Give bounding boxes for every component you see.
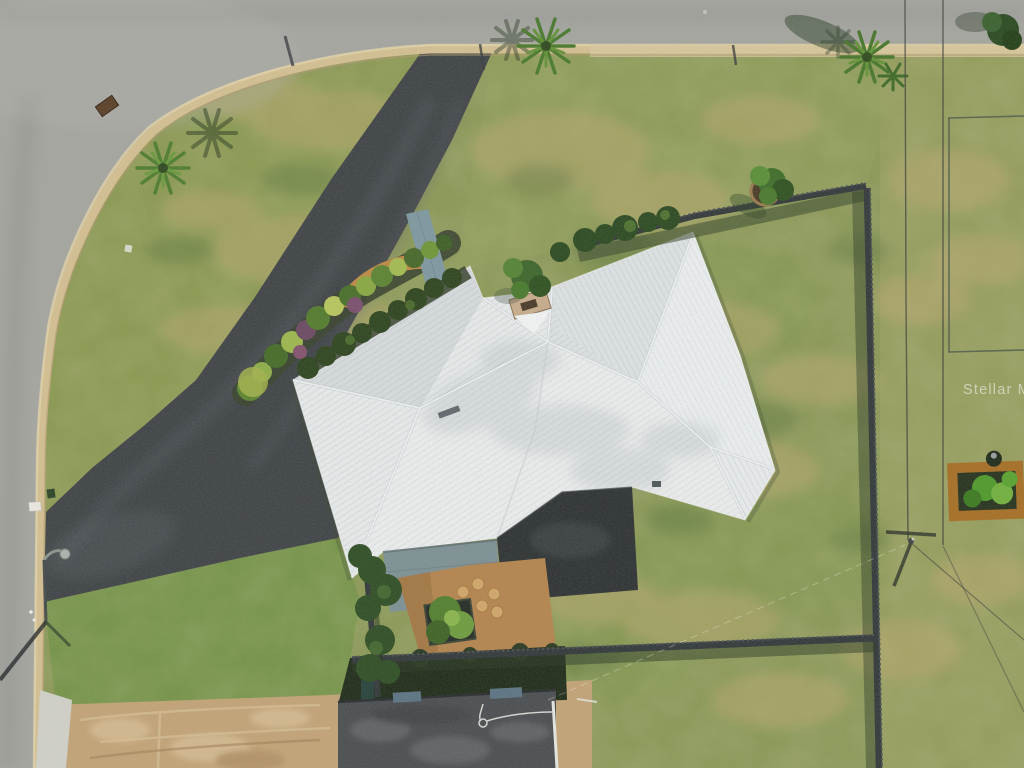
photo-grain	[0, 0, 1024, 768]
stellar-mls-watermark: Stellar MLS	[963, 382, 1024, 398]
aerial-photo-canvas: Stellar MLS	[0, 0, 1024, 768]
aerial-photo: Stellar MLS	[0, 0, 1024, 768]
